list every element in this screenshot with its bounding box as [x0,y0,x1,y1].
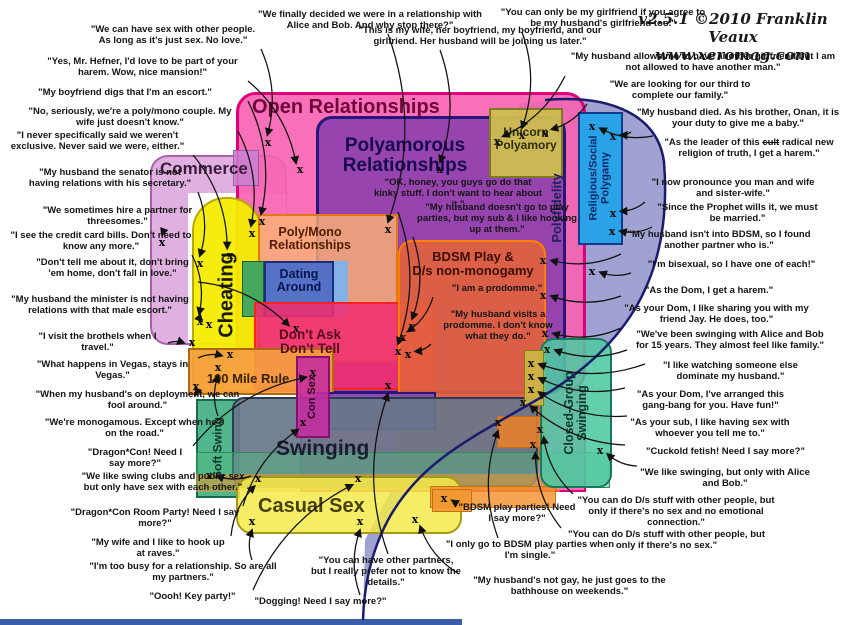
quote-q06: "My husband the senator is not having re… [25,168,195,190]
quote-q08: "I see the credit card bills. Don't need… [2,231,200,253]
quote-q20: "Oooh! Key party!" [135,592,250,603]
x-marker-q18: x [255,472,262,485]
x-marker-q46: x [400,331,407,344]
quote-q43: "My husband's not gay, he just goes to t… [462,576,677,598]
quote-q40: "We like swinging, but only with Alice a… [640,468,810,490]
x-marker-q41: x [537,423,544,436]
quote-q41: "You can do D/s stuff with other people,… [576,496,776,528]
quote-q17: "Dragon*Con Room Party! Need I say more?… [70,508,240,530]
x-marker-q47: x [405,348,412,361]
quote-q46: "I am a prodomme." [436,284,558,295]
quote-q25: "My husband allows me to have another gi… [568,52,838,74]
x-marker-q23: x [437,163,444,176]
x-marker-q19: x [249,515,256,528]
x-marker-q40: x [597,444,604,457]
x-marker-q39: x [520,396,527,409]
x-marker-q29: x [610,207,617,220]
x-marker-q21: x [357,515,364,528]
quote-q04: "No, seriously, we're a poly/mono couple… [25,107,235,129]
x-marker-q30: x [609,225,616,238]
x-marker-q31: x [540,254,547,267]
x-marker-q48: x [385,379,392,392]
x-marker-q32: x [589,265,596,278]
quote-q09: "Don't tell me about it, don't bring 'em… [30,258,195,280]
x-marker-q04: x [249,227,256,240]
quote-q14: "We're monogamous. Except when he's on t… [42,418,227,440]
region-label-con-sex: Con Sex [307,375,319,419]
x-marker-q11: x [189,336,196,349]
region-bottom-strip [0,619,462,625]
quote-q10: "My husband the minister is not having r… [5,295,195,317]
x-marker-q17: x [300,416,307,429]
quote-q31: "My husband isn't into BDSM, so I found … [624,230,814,252]
x-marker-q42: x [530,438,537,451]
x-marker-q38: x [528,383,535,396]
x-marker-q44: x [395,345,402,358]
region-label-open-relationships: Open Relationships [252,97,440,118]
quote-q45: "My husband doesn't go to play parties, … [416,203,578,235]
x-marker-q10: x [206,318,213,331]
quote-q47: "My husband visits a prodomme. I don't k… [434,310,562,342]
quote-q12: "What happens in Vegas, stays in Vegas." [30,360,195,382]
x-marker-q09: x [293,322,300,335]
x-marker-q01: x [265,136,272,149]
quote-q13: "When my husband's on deployment, we can… [35,390,240,412]
x-marker-q49: x [441,492,448,505]
quote-q36: "I like watching someone else dominate m… [648,361,813,383]
x-marker-q15: x [310,366,317,379]
quote-q33: "As the Dom, I get a harem." [624,286,794,297]
region-label-religious-social-polygamy: Religious/Social Polygamy [588,136,611,221]
quote-q30: "Since the Prophet wills it, we must be … [655,203,820,225]
x-marker-q45: x [409,320,416,333]
x-marker-q20: x [355,472,362,485]
quote-q29: "I now pronounce you man and wife and si… [648,178,818,200]
x-marker-q02: x [297,163,304,176]
x-marker-q05: x [227,249,234,262]
quote-q37: "As your Dom, I've arranged this gang-ba… [628,390,793,412]
x-marker-q06: x [197,257,204,270]
quote-q01: "We can have sex with other people. As l… [88,25,258,47]
x-marker-q36: x [528,357,535,370]
quote-q05: "I never specifically said we weren't ex… [5,131,190,153]
x-marker-q03: x [259,215,266,228]
x-marker-q43: x [412,513,419,526]
region-label-casual-sex: Casual Sex [258,496,365,517]
quote-q16: "We like swing clubs and public sex but … [78,472,248,494]
quote-q32: "I'm bisexual, so I have one of each!" [634,260,829,271]
region-label-dating-around: Dating Around [264,268,334,295]
region-label-cheating: Cheating [216,252,237,338]
quote-q11: "I visit the brothels when I travel." [30,332,165,354]
region-label-poly-mono-relationships: Poly/Mono Relationships [262,226,358,253]
quote-q48: "You can have other partners, but I real… [310,556,462,588]
x-marker-q08: x [197,315,204,328]
quote-q21: "Dogging! Need I say more?" [238,597,403,608]
x-marker-q12: x [227,348,234,361]
quote-q38: "As your sub, I like having sex with who… [630,418,790,440]
x-marker-q35: x [544,343,551,356]
quote-q49: "BDSM play parties! Need I say more?" [458,503,576,525]
quote-q28: "As the leader of this cult radical new … [656,138,842,160]
quote-q07: "We sometimes hire a partner for threeso… [25,206,210,228]
non-monogamy-map: v2.5.1 ©2010 Franklin Veaux www.xeromag.… [0,0,843,625]
quote-q27: "My husband died. As his brother, Onan, … [634,108,842,130]
quote-q03: "My boyfriend digs that I'm an escort." [5,88,245,99]
quote-q15: "Dragon*Con! Need I say more?" [80,448,190,470]
quote-q26: "We are looking for our third to complet… [590,80,770,102]
x-marker-q28: x [589,120,596,133]
quote-q24: "You can only be my girlfriend if you ag… [498,8,708,30]
x-marker-q14: x [215,361,222,374]
x-marker-q50: x [495,416,502,429]
x-marker-q24: x [519,129,526,142]
quote-q02: "Yes, Mr. Hefner, I'd love to be part of… [40,57,245,79]
region-label-swinging: Swinging [276,438,369,460]
quote-q39: "Cuckold fetish! Need I say more?" [628,447,823,458]
region-label-hundred-mile-rule: 100 Mile Rule [196,372,300,386]
x-marker-q25: x [494,135,501,148]
quote-q50: "I only go to BDSM play parties when I'm… [444,540,616,562]
x-marker-q27: x [610,130,617,143]
x-marker-q37: x [528,370,535,383]
region-label-dont-ask-dont-tell: Don't Ask Don't Tell [262,328,358,357]
quote-q18: "My wife and I like to hook up at raves.… [88,538,228,560]
region-label-polyamorous-relationships: Polyamorous Relationships [325,136,485,176]
region-label-bdsm-ds-nonmonogamy: BDSM Play & D/s non-monogamy [404,250,542,278]
region-label-closed-group-swinging: Closed-Group Swinging [563,371,590,454]
quote-q35: "We've been swinging with Alice and Bob … [630,330,830,352]
quote-q19: "I'm too busy for a relationship. So are… [88,562,278,584]
x-marker-q22: x [385,223,392,236]
quote-q34: "As your Dom, I like sharing you with my… [624,304,809,326]
x-marker-q26: x [542,127,549,140]
